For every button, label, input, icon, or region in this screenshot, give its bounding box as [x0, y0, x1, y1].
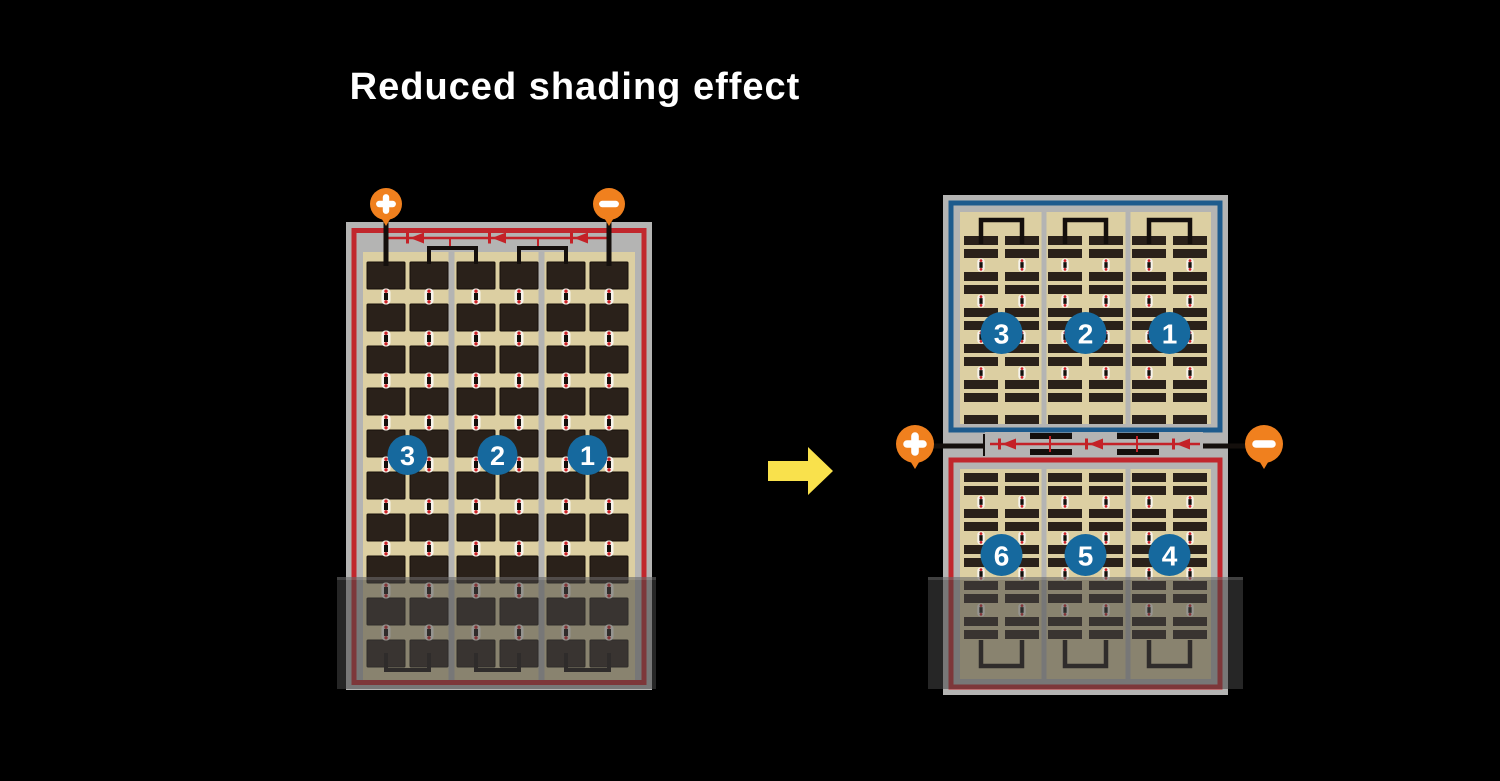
- connector-bar: [1020, 499, 1023, 505]
- connector-bar: [564, 461, 568, 468]
- string-number: 3: [994, 319, 1010, 350]
- connector-bar: [427, 503, 431, 510]
- cell: [367, 514, 405, 541]
- connector-dot: [517, 468, 520, 471]
- half-cell: [964, 522, 998, 531]
- connector-dot: [517, 500, 520, 503]
- connector-dot: [1148, 541, 1151, 544]
- connector-dot: [384, 342, 387, 345]
- minus-icon: [1252, 440, 1276, 448]
- connector-dot: [474, 510, 477, 513]
- shade-band-edge: [337, 577, 656, 580]
- half-cell: [964, 415, 998, 424]
- half-cell: [964, 357, 998, 366]
- connector-dot: [607, 458, 610, 461]
- half-cell: [964, 509, 998, 518]
- connector-bar: [427, 377, 431, 384]
- cell: [457, 472, 495, 499]
- connector-bar: [384, 377, 388, 384]
- connector-dot: [1105, 304, 1108, 307]
- connector-dot: [427, 332, 430, 335]
- half-cell: [1048, 272, 1082, 281]
- cell-connector: [425, 415, 434, 431]
- connector-dot: [1189, 367, 1192, 370]
- connector-bar: [564, 377, 568, 384]
- cell-connector: [472, 541, 481, 557]
- half-cell: [1005, 509, 1039, 518]
- half-cell: [964, 380, 998, 389]
- cell-connector: [562, 415, 571, 431]
- connector-dot: [427, 500, 430, 503]
- connector-dot: [474, 384, 477, 387]
- cell-connector: [425, 499, 434, 515]
- cell-connector: [472, 289, 481, 305]
- connector-dot: [474, 426, 477, 429]
- connector-dot: [1064, 268, 1067, 271]
- connector-dot: [474, 342, 477, 345]
- half-cell: [1089, 415, 1123, 424]
- connector-dot: [427, 552, 430, 555]
- diode-cathode-bar: [488, 233, 491, 244]
- connector-bar: [564, 419, 568, 426]
- cell-connector: [605, 499, 614, 515]
- minus-terminal: [1245, 425, 1283, 469]
- connector-dot: [1148, 496, 1151, 499]
- connector-dot: [1189, 268, 1192, 271]
- connector-dot: [980, 295, 983, 298]
- connector-dot: [474, 332, 477, 335]
- plus-icon: [383, 194, 389, 214]
- connector-dot: [980, 304, 983, 307]
- cell-connector: [515, 499, 524, 515]
- connector-dot: [1148, 259, 1151, 262]
- connector-bar: [607, 461, 611, 468]
- connector-dot: [564, 374, 567, 377]
- connector-dot: [980, 259, 983, 262]
- cell-connector: [1102, 294, 1109, 307]
- cell: [547, 262, 585, 289]
- connector-dot: [427, 458, 430, 461]
- cell-connector: [1061, 294, 1068, 307]
- cell: [410, 262, 448, 289]
- cell-connector: [425, 289, 434, 305]
- cell: [367, 346, 405, 373]
- connector-bar: [979, 571, 982, 577]
- cell-connector: [1061, 531, 1068, 544]
- connector-dot: [564, 468, 567, 471]
- connector-bar: [979, 370, 982, 376]
- connector-dot: [427, 426, 430, 429]
- connector-bar: [1104, 535, 1107, 541]
- connector-dot: [474, 552, 477, 555]
- connector-bar: [1020, 535, 1023, 541]
- connector-bar: [979, 499, 982, 505]
- connector-dot: [564, 458, 567, 461]
- connector-dot: [384, 332, 387, 335]
- diode-cathode-bar: [570, 233, 573, 244]
- connector-dot: [384, 552, 387, 555]
- connector-bar: [1147, 535, 1150, 541]
- connector-dot: [1021, 304, 1024, 307]
- connector-dot: [1148, 532, 1151, 535]
- half-cell: [1089, 473, 1123, 482]
- cell: [457, 388, 495, 415]
- half-cell: [1048, 285, 1082, 294]
- connector-bar: [474, 503, 478, 510]
- cell-connector: [472, 499, 481, 515]
- cell-connector: [1102, 495, 1109, 508]
- connector-dot: [517, 426, 520, 429]
- connector-dot: [1105, 541, 1108, 544]
- string-badge: 5: [1065, 534, 1107, 576]
- connector-dot: [1064, 568, 1067, 571]
- connector-dot: [564, 290, 567, 293]
- connector-dot: [427, 300, 430, 303]
- connector-dot: [1148, 304, 1151, 307]
- connector-bar: [607, 377, 611, 384]
- connector-bar: [427, 419, 431, 426]
- connector-dot: [1148, 505, 1151, 508]
- cell: [457, 304, 495, 331]
- cell-connector: [562, 373, 571, 389]
- connector-bar: [607, 293, 611, 300]
- shade-band: [337, 577, 656, 689]
- shade-band: [928, 577, 1243, 689]
- cell-connector: [977, 366, 984, 379]
- half-cell: [964, 393, 998, 402]
- cell-connector: [515, 415, 524, 431]
- connector-dot: [427, 468, 430, 471]
- group-divider: [1042, 212, 1047, 424]
- half-cell: [1089, 357, 1123, 366]
- connector-dot: [384, 300, 387, 303]
- half-cell: [1173, 285, 1207, 294]
- connector-bar: [564, 545, 568, 552]
- connector-bar: [564, 503, 568, 510]
- connector-dot: [517, 510, 520, 513]
- half-cell: [1089, 486, 1123, 495]
- half-cell: [1173, 357, 1207, 366]
- half-cell: [1005, 380, 1039, 389]
- half-cell: [1132, 272, 1166, 281]
- connector-dot: [384, 510, 387, 513]
- cell-connector: [1018, 366, 1025, 379]
- cell-connector: [977, 258, 984, 271]
- connector-bar: [517, 377, 521, 384]
- connector-dot: [980, 268, 983, 271]
- connector-dot: [427, 416, 430, 419]
- cell-connector: [515, 331, 524, 347]
- connector-dot: [1148, 268, 1151, 271]
- connector-bar: [1147, 262, 1150, 268]
- connector-bar: [1188, 571, 1191, 577]
- connector-dot: [1021, 268, 1024, 271]
- connector-dot: [564, 332, 567, 335]
- connector-dot: [517, 416, 520, 419]
- connector-dot: [607, 384, 610, 387]
- connector-bar: [979, 262, 982, 268]
- cell-connector: [472, 415, 481, 431]
- connector-dot: [517, 342, 520, 345]
- cell-connector: [472, 373, 481, 389]
- connector-dot: [1105, 496, 1108, 499]
- cell: [500, 388, 538, 415]
- connector-bar: [1063, 535, 1066, 541]
- half-cell: [1132, 509, 1166, 518]
- shade-overlay: [337, 577, 656, 689]
- connector-bar: [979, 535, 982, 541]
- cell-connector: [425, 331, 434, 347]
- cell-connector: [562, 289, 571, 305]
- cell-connector: [605, 415, 614, 431]
- connector-bar: [979, 298, 982, 304]
- string-badge: 3: [388, 435, 428, 475]
- cell-connector: [1145, 495, 1152, 508]
- half-cell: [1005, 486, 1039, 495]
- cell: [590, 514, 628, 541]
- connector-dot: [384, 290, 387, 293]
- half-cell: [964, 285, 998, 294]
- cell-connector: [605, 289, 614, 305]
- half-cell: [1005, 473, 1039, 482]
- cell: [590, 304, 628, 331]
- connector-dot: [1021, 532, 1024, 535]
- connector-bar: [474, 335, 478, 342]
- connector-bar: [427, 545, 431, 552]
- connector-dot: [1021, 496, 1024, 499]
- cell: [500, 346, 538, 373]
- string-number: 2: [490, 441, 505, 471]
- cell-connector: [382, 331, 391, 347]
- half-cell: [1048, 357, 1082, 366]
- half-cell: [1048, 473, 1082, 482]
- connector-bar: [1020, 298, 1023, 304]
- half-cell: [1132, 249, 1166, 258]
- plus-terminal: [896, 425, 934, 469]
- connector-dot: [474, 416, 477, 419]
- connector-bar: [1104, 370, 1107, 376]
- cell-connector: [977, 294, 984, 307]
- cell: [410, 388, 448, 415]
- connector-dot: [474, 542, 477, 545]
- string-number: 1: [580, 441, 595, 471]
- connector-dot: [564, 342, 567, 345]
- half-cell: [1089, 285, 1123, 294]
- connector-dot: [980, 505, 983, 508]
- cell-connector: [1102, 366, 1109, 379]
- string-badge: 2: [1065, 312, 1107, 354]
- connector-dot: [1189, 259, 1192, 262]
- cell-connector: [977, 495, 984, 508]
- connector-bar: [474, 545, 478, 552]
- diode-cathode-bar: [998, 439, 1001, 450]
- cell-connector: [425, 541, 434, 557]
- string-badge: 6: [981, 534, 1023, 576]
- connector-dot: [1064, 496, 1067, 499]
- connector-dot: [607, 416, 610, 419]
- cell-connector: [1061, 258, 1068, 271]
- cell-connector: [1018, 495, 1025, 508]
- connector-bar: [607, 419, 611, 426]
- string-number: 5: [1078, 541, 1094, 572]
- connector-dot: [607, 332, 610, 335]
- cell-connector: [562, 331, 571, 347]
- half-cell: [1048, 415, 1082, 424]
- connector-dot: [1189, 541, 1192, 544]
- plus-terminal: [370, 188, 402, 226]
- connector-dot: [607, 552, 610, 555]
- connector-dot: [384, 416, 387, 419]
- cell-connector: [1018, 531, 1025, 544]
- cell-connector: [515, 289, 524, 305]
- connector-bar: [474, 461, 478, 468]
- cell-connector: [1145, 258, 1152, 271]
- cell-connector: [562, 499, 571, 515]
- connector-dot: [1105, 376, 1108, 379]
- connector-bar: [1104, 571, 1107, 577]
- string-badge: 4: [1149, 534, 1191, 576]
- half-cell: [1089, 272, 1123, 281]
- half-cell: [1173, 249, 1207, 258]
- cell: [547, 472, 585, 499]
- connector-dot: [564, 426, 567, 429]
- string-number: 2: [1078, 319, 1094, 350]
- minus-terminal: [593, 188, 625, 226]
- connector-dot: [384, 458, 387, 461]
- connector-dot: [1064, 259, 1067, 262]
- connector-dot: [1105, 295, 1108, 298]
- cell: [367, 388, 405, 415]
- connector-bar: [1147, 499, 1150, 505]
- cell-connector: [382, 373, 391, 389]
- cell: [410, 514, 448, 541]
- cell-connector: [382, 541, 391, 557]
- connector-bar: [1188, 262, 1191, 268]
- connector-bar: [517, 419, 521, 426]
- connector-bar: [1020, 370, 1023, 376]
- cell-connector: [382, 415, 391, 431]
- cell-connector: [1186, 258, 1193, 271]
- cell: [590, 262, 628, 289]
- cell-connector: [1061, 495, 1068, 508]
- connector-dot: [384, 426, 387, 429]
- cell: [457, 346, 495, 373]
- half-cell: [1173, 272, 1207, 281]
- cell-connector: [1186, 366, 1193, 379]
- connector-dot: [1148, 295, 1151, 298]
- minus-icon: [599, 201, 619, 207]
- connector-dot: [1105, 259, 1108, 262]
- connector-dot: [474, 300, 477, 303]
- connector-bar: [384, 461, 388, 468]
- connector-bar: [384, 335, 388, 342]
- connector-dot: [384, 500, 387, 503]
- cell: [367, 262, 405, 289]
- half-cell: [1132, 285, 1166, 294]
- string-badge: 2: [478, 435, 518, 475]
- connector-dot: [517, 542, 520, 545]
- connector-dot: [607, 342, 610, 345]
- half-cell: [964, 486, 998, 495]
- connector-bar: [1188, 370, 1191, 376]
- connector-dot: [564, 300, 567, 303]
- cell-connector: [1018, 258, 1025, 271]
- half-cell: [1005, 357, 1039, 366]
- connector-dot: [1189, 532, 1192, 535]
- connector-bar: [384, 503, 388, 510]
- cell-connector: [472, 331, 481, 347]
- connector-dot: [564, 384, 567, 387]
- connector-dot: [517, 290, 520, 293]
- connector-dot: [427, 384, 430, 387]
- connector-bar: [1063, 370, 1066, 376]
- string-number: 1: [1162, 319, 1178, 350]
- connector-bar: [384, 545, 388, 552]
- connector-dot: [980, 496, 983, 499]
- connector-dot: [517, 552, 520, 555]
- half-cell: [1005, 522, 1039, 531]
- connector-bar: [474, 293, 478, 300]
- connector-dot: [427, 510, 430, 513]
- connector-dot: [1189, 376, 1192, 379]
- connector-bar: [1063, 571, 1066, 577]
- half-cell: [964, 249, 998, 258]
- half-cell: [1132, 415, 1166, 424]
- cell: [410, 304, 448, 331]
- connector-dot: [607, 542, 610, 545]
- connector-dot: [1148, 376, 1151, 379]
- connector-bar: [1063, 262, 1066, 268]
- half-cell: [964, 473, 998, 482]
- half-cell: [1173, 522, 1207, 531]
- connector-dot: [384, 468, 387, 471]
- connector-dot: [1189, 496, 1192, 499]
- connector-dot: [607, 426, 610, 429]
- cell: [457, 262, 495, 289]
- connector-dot: [474, 374, 477, 377]
- half-cell: [1005, 285, 1039, 294]
- half-cell: [1005, 272, 1039, 281]
- cell-connector: [1145, 366, 1152, 379]
- connector-dot: [474, 500, 477, 503]
- cell: [500, 262, 538, 289]
- connector-bar: [1104, 499, 1107, 505]
- half-cell: [1132, 393, 1166, 402]
- connector-bar: [1188, 535, 1191, 541]
- half-cell: [1048, 522, 1082, 531]
- connector-dot: [980, 376, 983, 379]
- cell-connector: [1186, 294, 1193, 307]
- connector-dot: [607, 510, 610, 513]
- connector-dot: [1064, 295, 1067, 298]
- connector-bar: [1104, 298, 1107, 304]
- connector-dot: [607, 468, 610, 471]
- cell-connector: [382, 499, 391, 515]
- connector-bar: [564, 293, 568, 300]
- cell-connector: [562, 541, 571, 557]
- connector-bar: [1104, 262, 1107, 268]
- connector-bar: [517, 503, 521, 510]
- cell: [410, 346, 448, 373]
- diode-cathode-bar: [1085, 439, 1088, 450]
- connector-bar: [474, 419, 478, 426]
- cell-connector: [425, 373, 434, 389]
- half-cell: [1089, 522, 1123, 531]
- connector-dot: [474, 458, 477, 461]
- connector-dot: [517, 384, 520, 387]
- connector-bar: [607, 545, 611, 552]
- connector-bar: [384, 293, 388, 300]
